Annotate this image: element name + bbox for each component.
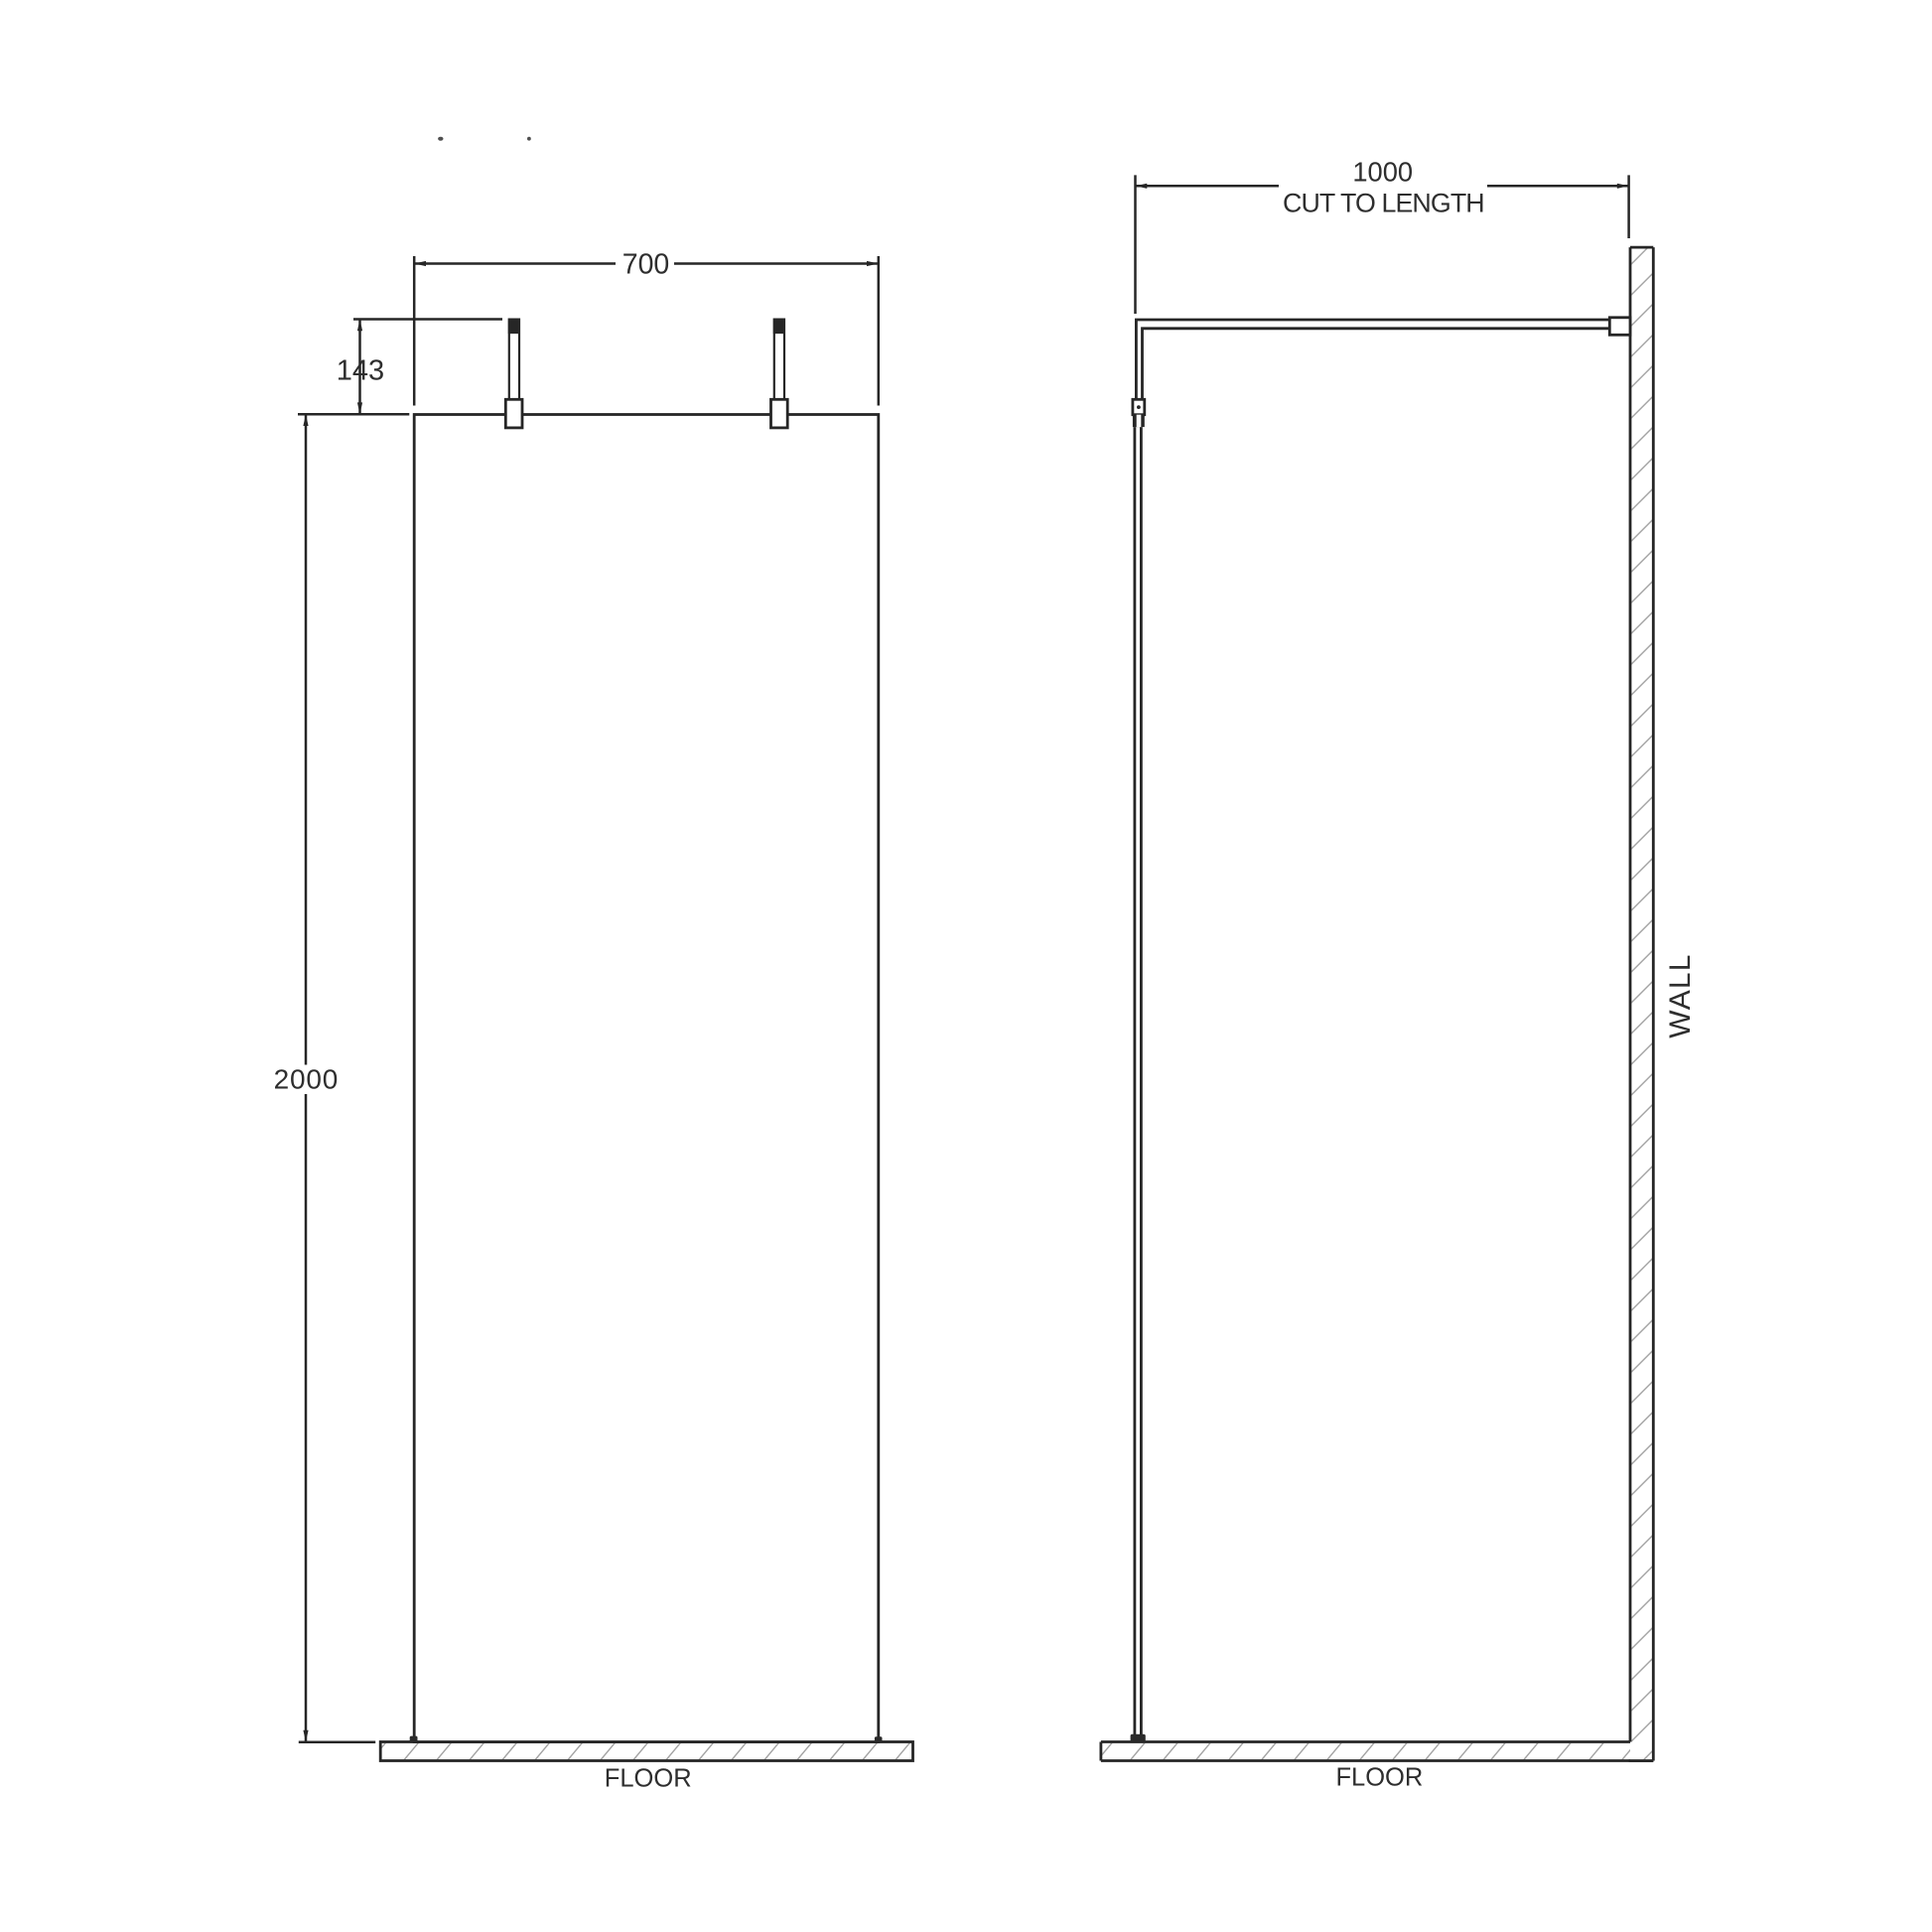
svg-text:WALL: WALL <box>1664 953 1697 1037</box>
svg-text:CUT TO LENGTH: CUT TO LENGTH <box>1283 189 1484 218</box>
svg-text:FLOOR: FLOOR <box>605 1765 692 1793</box>
svg-text:2000: 2000 <box>274 1064 340 1095</box>
svg-text:700: 700 <box>622 249 670 281</box>
svg-text:1000: 1000 <box>1352 157 1413 188</box>
svg-text:FLOOR: FLOOR <box>1335 1764 1423 1792</box>
svg-text:143: 143 <box>337 355 384 387</box>
